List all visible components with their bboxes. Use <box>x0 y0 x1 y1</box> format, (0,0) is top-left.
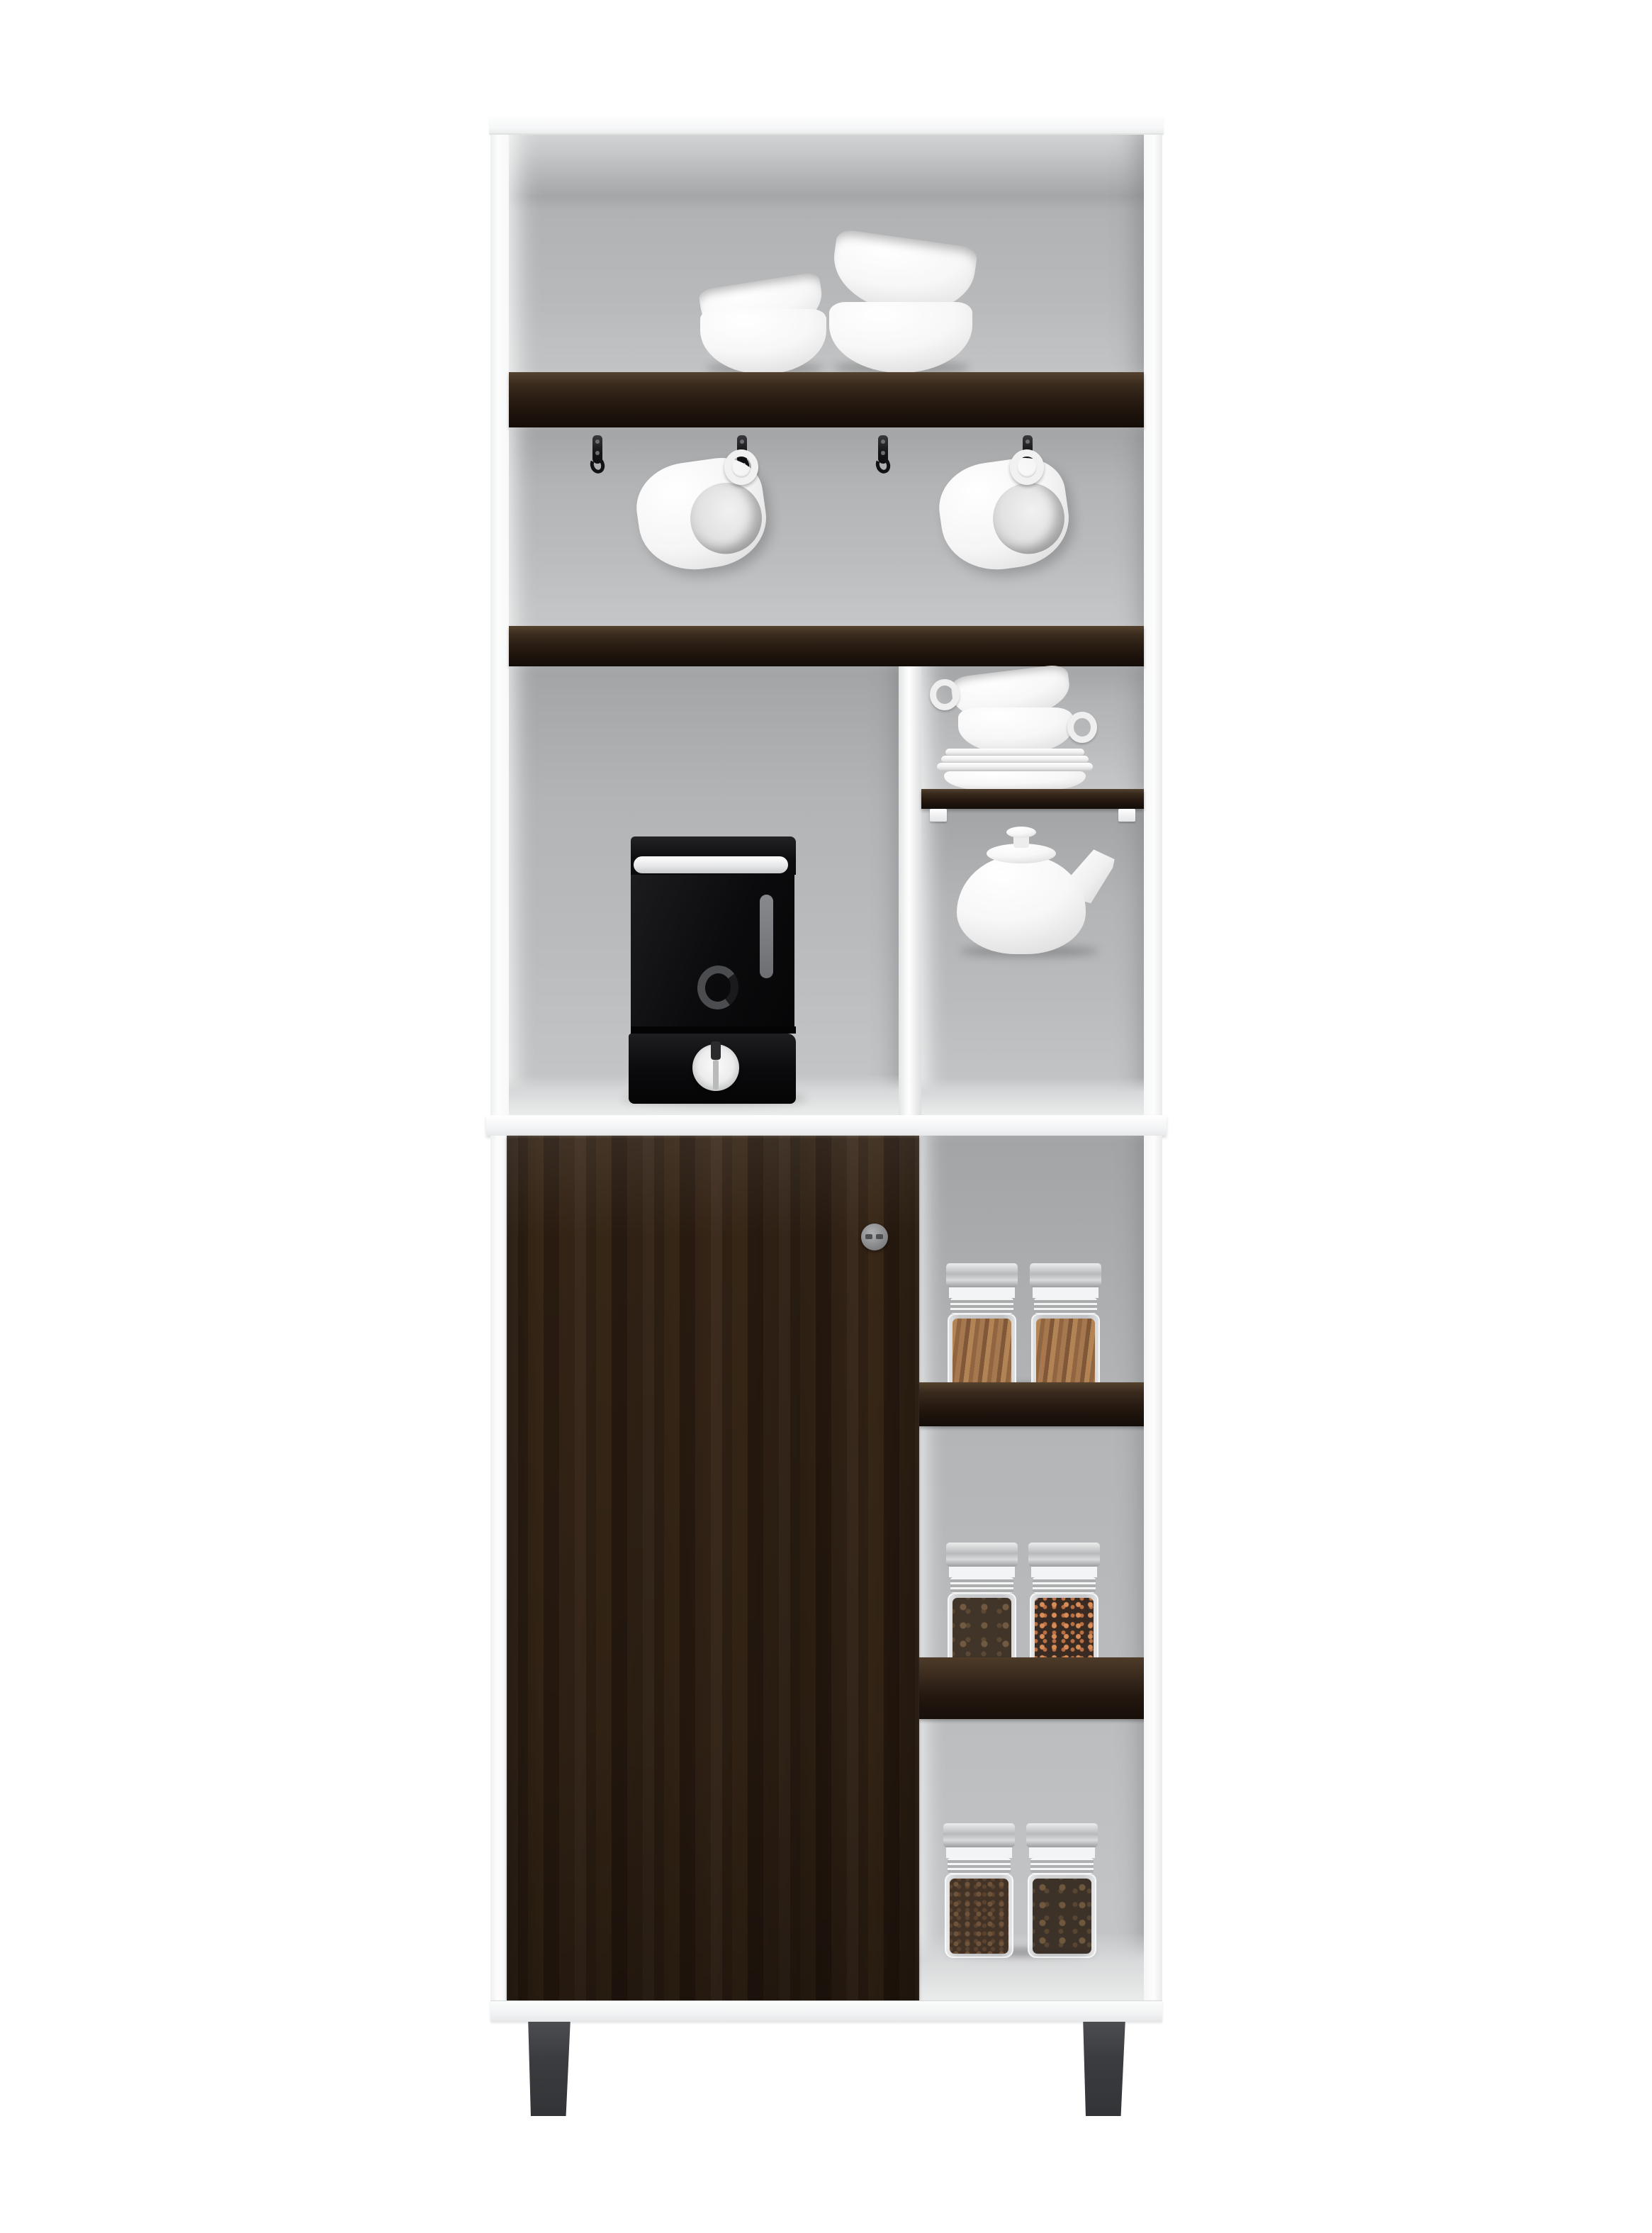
product-photo-canvas <box>0 0 1652 2233</box>
small-wood-shelf <box>921 789 1144 809</box>
knob-detail <box>876 1234 883 1239</box>
wood-shelf-middle <box>509 626 1144 666</box>
jar-neck <box>950 1298 1013 1314</box>
jar-neck <box>1030 1858 1094 1874</box>
spice-shelf-lower <box>919 1657 1150 1719</box>
jar-neck <box>950 1577 1013 1593</box>
cabinet-side-lower-left <box>490 1136 507 2000</box>
knob-detail <box>865 1234 872 1239</box>
jar-neck <box>1033 1577 1096 1593</box>
mug-hook-3 <box>875 435 892 478</box>
wood-shelf-top <box>509 372 1144 427</box>
cabinet-side-upper-left <box>490 135 509 1115</box>
jar-lid <box>1028 1543 1100 1567</box>
cinnamon-sticks <box>1036 1319 1095 1387</box>
mug-handle <box>1010 449 1044 485</box>
saucer-plate <box>944 771 1086 790</box>
spice-shelf-upper <box>919 1382 1150 1426</box>
cabinet-side-upper-right <box>1144 135 1162 1115</box>
jar-peppercorns <box>1030 1543 1098 1670</box>
teapot-knob <box>1006 827 1036 838</box>
divider-panel <box>899 666 921 1115</box>
jar-lid-band <box>1031 1567 1097 1577</box>
cabinet-leg-right <box>1082 2022 1126 2116</box>
jar-lid-band <box>1029 1847 1095 1858</box>
jar-lid <box>1030 1263 1101 1287</box>
machine-dial <box>692 1044 739 1091</box>
jar-cinnamon-2 <box>1031 1263 1100 1391</box>
star-anise <box>1033 1879 1091 1954</box>
cinnamon-sticks <box>953 1319 1011 1387</box>
hook-screw <box>1026 440 1030 444</box>
counter-band <box>486 1115 1167 1136</box>
door-knob <box>861 1224 888 1250</box>
jar-cinnamon-1 <box>948 1263 1016 1391</box>
jar-star-anise <box>948 1543 1016 1670</box>
jar-coffee-beans <box>945 1823 1013 1958</box>
jar-lid <box>1026 1823 1098 1847</box>
cabinet-leg-left <box>527 2022 571 2116</box>
cell-floor <box>921 1078 1144 1115</box>
jar-neck <box>948 1858 1011 1874</box>
hook-screw <box>595 440 600 444</box>
mug-handle <box>724 449 758 485</box>
teacup-handle-right <box>1067 712 1097 743</box>
saucer <box>937 763 1093 771</box>
teapot <box>957 855 1086 954</box>
hook-screw <box>595 451 600 455</box>
cabinet-door <box>507 1136 919 2000</box>
coffee-machine-seam <box>631 1026 796 1034</box>
teacup-handle-left <box>930 679 960 710</box>
mug-hook-1 <box>589 435 606 478</box>
jar-lid-band <box>1033 1287 1098 1298</box>
cabinet-top-board <box>489 116 1164 135</box>
coffee-beans <box>950 1879 1008 1954</box>
dial-notch <box>711 1041 721 1060</box>
hook-screw <box>881 451 885 455</box>
dial-stripe <box>713 1060 719 1090</box>
hook-screw <box>881 440 885 444</box>
hook-curl <box>874 454 892 475</box>
jar-lid <box>943 1823 1015 1847</box>
jar-lid <box>946 1543 1018 1567</box>
jar-lid-band <box>946 1847 1012 1858</box>
peppercorns <box>1035 1598 1094 1666</box>
cabinet-side-lower-right <box>1144 1136 1162 2000</box>
hook-screw <box>740 440 744 444</box>
jar-neck <box>1034 1298 1097 1314</box>
jar-lid-band <box>949 1287 1015 1298</box>
star-anise <box>953 1598 1011 1666</box>
open-cubby-bowls <box>509 135 1144 372</box>
shelf-bracket <box>930 809 947 822</box>
hook-curl <box>588 454 607 475</box>
jar-star-anise-2 <box>1028 1823 1096 1958</box>
base-panel <box>490 2000 1162 2022</box>
coffee-machine-slot <box>760 895 773 978</box>
shelf-bracket <box>1118 809 1135 822</box>
jar-lid-band <box>949 1567 1015 1577</box>
jar-lid <box>946 1263 1018 1287</box>
coffee-machine-tray <box>634 856 788 873</box>
